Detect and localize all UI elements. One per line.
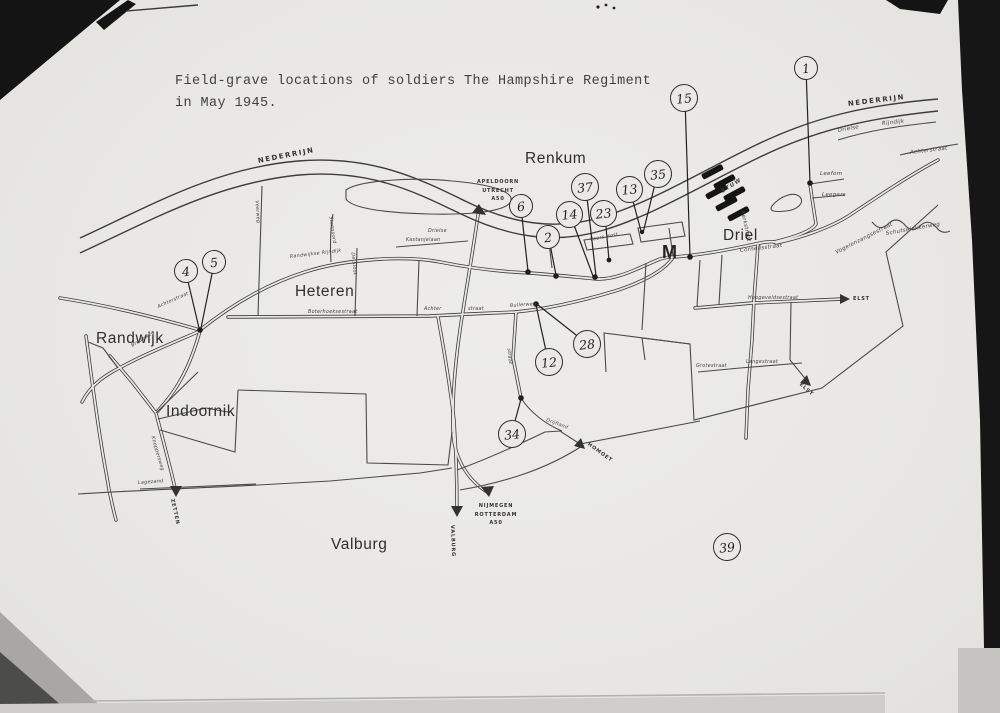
street-label: Drielse — [428, 229, 447, 234]
street-label: Langestraat — [746, 360, 778, 365]
town-label-heteren: Heteren — [295, 283, 354, 301]
sign-elst-east: ELST — [853, 296, 870, 302]
street-label: Boterhoeksestraat — [308, 310, 357, 315]
street-label: Hoogeveldsestraat — [748, 296, 798, 301]
town-label-driel: Driel — [723, 227, 758, 245]
map-title: Field-grave locations of soldiers The Ha… — [175, 71, 651, 114]
town-label-randwijk: Randwijk — [96, 330, 164, 348]
street-label: Grotestraat — [696, 364, 727, 369]
town-label-indoornik: Indoornik — [166, 403, 235, 421]
street-label: Leefom — [820, 171, 842, 177]
street-label: Achter — [424, 307, 442, 312]
map-title-line2: in May 1945. — [175, 93, 651, 115]
street-label: Leegers — [822, 192, 846, 198]
sign-valburg: VALBURG — [449, 525, 456, 557]
street-label: straat — [468, 307, 484, 312]
map-title-line1: Field-grave locations of soldiers The Ha… — [175, 71, 651, 93]
roads-infill — [60, 160, 938, 520]
sign-nijmegen-rotterdam-a50: NIJMEGEN ROTTERDAM A50 — [470, 502, 522, 528]
roads-casing — [60, 160, 938, 520]
town-label-renkum: Renkum — [525, 150, 586, 168]
street-label: Kastanjelaan — [406, 238, 440, 243]
scanned-map-page: { "title": { "line1": "Field-grave locat… — [0, 0, 1000, 713]
landmark-letter-m: M — [662, 242, 677, 263]
town-label-valburg: Valburg — [331, 536, 387, 554]
